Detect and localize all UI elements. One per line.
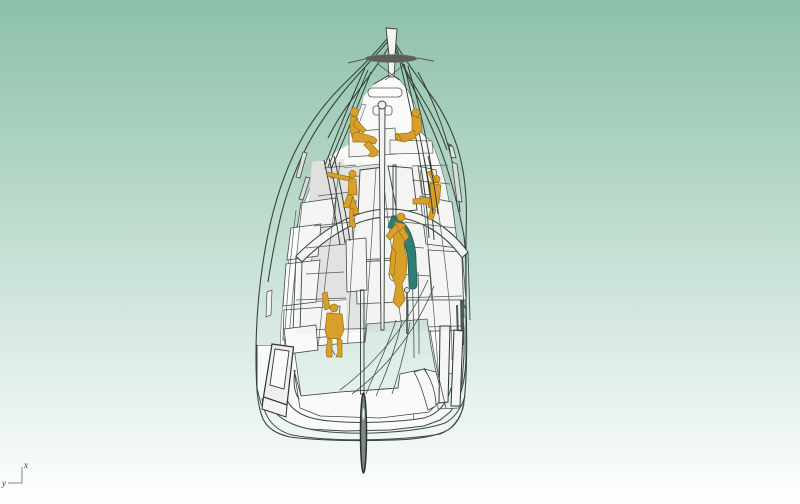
svg-text:x: x: [23, 460, 28, 470]
svg-text:y: y: [1, 478, 6, 488]
